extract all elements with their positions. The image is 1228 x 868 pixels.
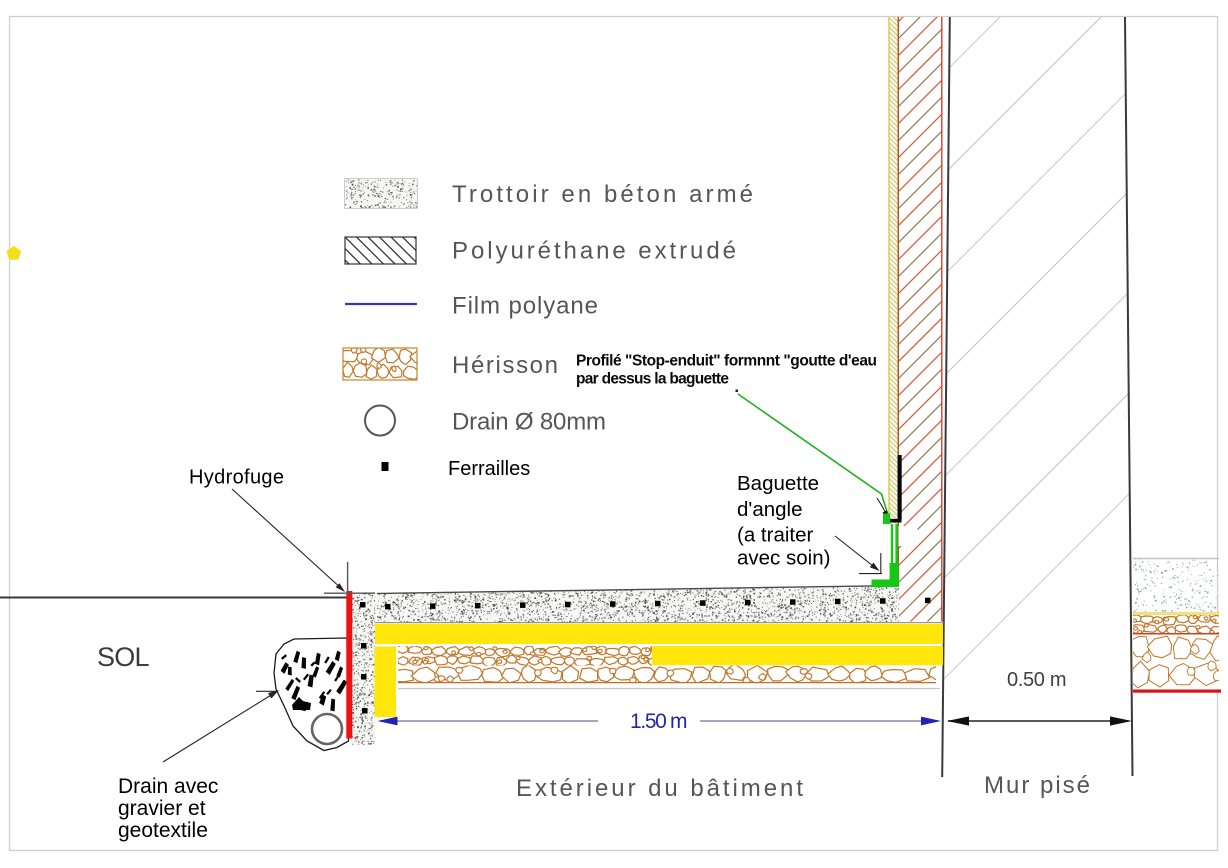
svg-text:par dessus la baguette: par dessus la baguette: [576, 371, 729, 388]
svg-text:Extérieur du bâtiment: Extérieur du bâtiment: [516, 775, 805, 802]
svg-text:Trottoir en béton armé: Trottoir en béton armé: [452, 181, 755, 208]
svg-text:1.50 m: 1.50 m: [630, 710, 689, 733]
svg-text:0.50 m: 0.50 m: [1007, 669, 1068, 691]
svg-text:geotextile: geotextile: [118, 819, 208, 842]
svg-text:Profilé "Stop-enduit" formnnt: Profilé "Stop-enduit" formnnt "goutte d'…: [576, 353, 877, 370]
svg-text:SOL: SOL: [97, 642, 151, 672]
svg-text:Mur pisé: Mur pisé: [984, 772, 1092, 799]
svg-text:avec soin): avec soin): [737, 547, 830, 570]
svg-text:(a traiter: (a traiter: [737, 524, 813, 547]
svg-text:Hérisson: Hérisson: [452, 352, 560, 379]
svg-text:Hydrofuge: Hydrofuge: [189, 467, 284, 489]
svg-text:Drain Ø 80mm: Drain Ø 80mm: [452, 409, 608, 436]
svg-text:d'angle: d'angle: [737, 498, 802, 521]
svg-text:Drain avec: Drain avec: [118, 775, 218, 798]
svg-text:gravier et: gravier et: [118, 797, 206, 820]
svg-text:Ferrailles: Ferrailles: [448, 458, 530, 480]
svg-text:Film polyane: Film polyane: [452, 293, 600, 320]
svg-text:Polyuréthane extrudé: Polyuréthane extrudé: [452, 238, 738, 265]
svg-text:Baguette: Baguette: [737, 472, 819, 495]
